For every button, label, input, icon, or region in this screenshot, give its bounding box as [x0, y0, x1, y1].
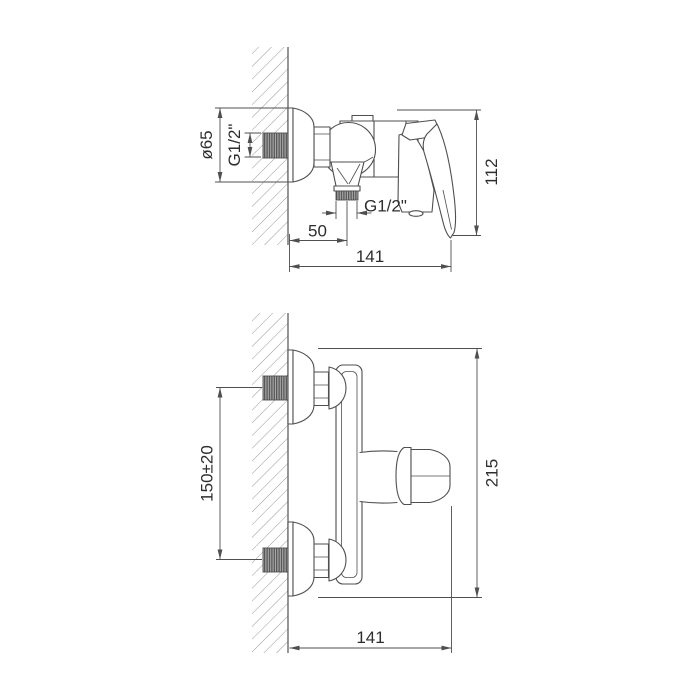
mixer-body-front [288, 350, 450, 596]
outlet-connector [360, 448, 450, 505]
technical-drawing-page: ø65 G1/2" G1/2" 50 [0, 0, 700, 700]
neck-top-edge [360, 451, 397, 453]
dim-label-inlet-spacing: 150±20 [198, 445, 217, 502]
escutcheon-base-top [288, 350, 293, 424]
dimension-wall-to-outlet: 50 [290, 201, 348, 272]
side-view: ø65 G1/2" G1/2" 50 [197, 47, 501, 272]
dimension-outlet-thread: G1/2" [322, 197, 407, 220]
escutcheon-base [288, 108, 293, 182]
dim-label-wall-to-outlet: 50 [308, 222, 327, 241]
inlet-thread-top [263, 376, 291, 400]
mixer-body-side [288, 108, 456, 238]
wall-hatch [252, 313, 288, 653]
connector-collar [396, 448, 411, 505]
dim-label-height: 112 [482, 158, 501, 185]
front-view: 150±20 215 141 [198, 313, 502, 653]
technical-drawing: ø65 G1/2" G1/2" 50 [0, 0, 700, 700]
outlet-collar [334, 186, 360, 191]
body-top-lip [352, 116, 373, 122]
dim-label-inlet-thread: G1/2" [225, 124, 244, 167]
neck-bottom-edge [360, 502, 397, 504]
inlet-thread [263, 133, 291, 158]
connection-nut-top [313, 372, 329, 406]
escutcheon-dome-bottom [293, 522, 314, 596]
wall-section [252, 313, 288, 653]
escutcheon-base-bottom [288, 522, 293, 596]
dim-label-depth: 141 [356, 247, 384, 266]
dim-label-depth: 141 [356, 628, 384, 647]
dimension-depth-141: 141 [290, 240, 452, 272]
dim-label-escutcheon-diameter: ø65 [197, 130, 216, 159]
outlet-thread [336, 191, 358, 200]
connection-nut [314, 127, 330, 167]
dim-label-outlet-thread: G1/2" [364, 197, 407, 216]
escutcheon-dome [293, 108, 314, 182]
dim-label-height: 215 [483, 459, 502, 487]
connection-nut-bottom [313, 544, 329, 578]
escutcheon-dome-top [293, 350, 314, 424]
inlet-thread-bottom [263, 548, 291, 572]
mount-underside-cap [409, 211, 423, 217]
